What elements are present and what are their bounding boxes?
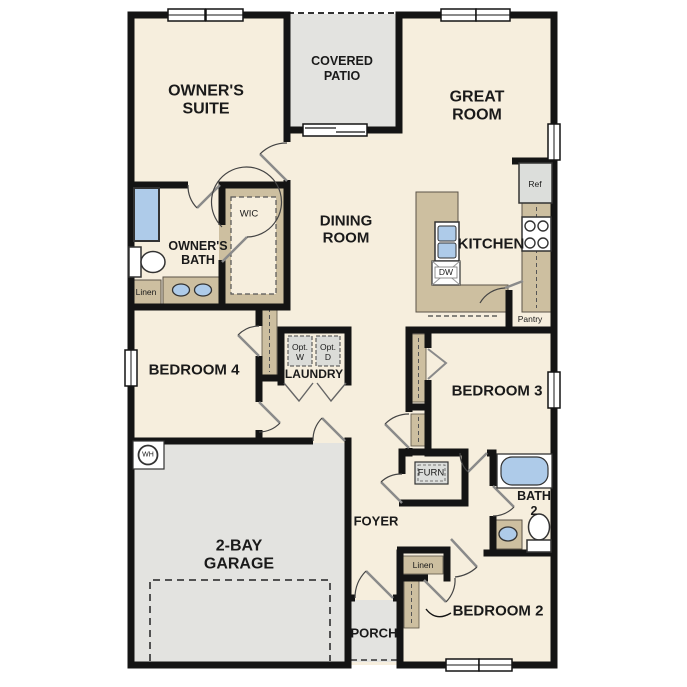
- bedroom4-label: BEDROOM 4: [149, 362, 241, 379]
- bathtub-bath2: [497, 454, 552, 488]
- dining-room-label-2: ROOM: [323, 230, 370, 247]
- dining-room-label-1: DINING: [320, 213, 373, 230]
- floor-plan-svg: OWNER'S SUITE COVERED PATIO GREAT ROOM D…: [0, 0, 687, 687]
- kitchen-sink: [435, 222, 459, 261]
- opt-washer-label-2: W: [296, 352, 304, 362]
- wic-label: WIC: [240, 209, 259, 220]
- linen-owners-bath-label: Linen: [136, 287, 157, 297]
- floor-plan: OWNER'S SUITE COVERED PATIO GREAT ROOM D…: [0, 0, 687, 687]
- sink-bath2: [499, 527, 517, 541]
- owners-bath-label-1: OWNER'S: [168, 239, 227, 253]
- owners-suite-label-2: SUITE: [182, 101, 229, 118]
- water-heater-label: WH: [142, 452, 154, 459]
- kitchen-label: KITCHEN: [458, 236, 525, 253]
- opt-washer-label-1: Opt.: [292, 342, 308, 352]
- foyer-label: FOYER: [354, 514, 399, 529]
- opt-dryer-label-1: Opt.: [320, 342, 336, 352]
- sink-owners-bath-2: [195, 284, 212, 296]
- bath2-label-2: 2: [531, 504, 538, 518]
- shower-owners-bath: [134, 188, 159, 241]
- covered-patio-label-2: PATIO: [324, 69, 361, 83]
- sink-owners-bath-1: [173, 284, 190, 296]
- bedroom3-label: BEDROOM 3: [452, 383, 543, 400]
- linen-hall-label: Linen: [413, 560, 434, 570]
- door-patio-slider: [303, 124, 367, 136]
- bath2-label-1: BATH: [517, 489, 551, 503]
- opt-dryer-label-2: D: [325, 352, 331, 362]
- covered-patio-label-1: COVERED: [311, 54, 373, 68]
- stove: [522, 217, 551, 251]
- porch-label: PORCH: [351, 626, 398, 641]
- owners-suite-label-1: OWNER'S: [168, 83, 244, 100]
- refrigerator-label: Ref: [528, 179, 542, 189]
- laundry-label: LAUNDRY: [285, 367, 343, 381]
- furnace-label: FURN: [418, 468, 445, 479]
- great-room-label-2: ROOM: [452, 107, 502, 124]
- great-room-label-1: GREAT: [450, 89, 505, 106]
- garage-label-1: 2-BAY: [216, 538, 263, 555]
- dishwasher-label: DW: [439, 267, 453, 277]
- pantry-label: Pantry: [518, 314, 543, 324]
- garage-label-2: GARAGE: [204, 556, 275, 573]
- bedroom2-label: BEDROOM 2: [453, 603, 544, 620]
- toilet-bath2: [527, 514, 551, 552]
- owners-bath-label-2: BATH: [181, 253, 215, 267]
